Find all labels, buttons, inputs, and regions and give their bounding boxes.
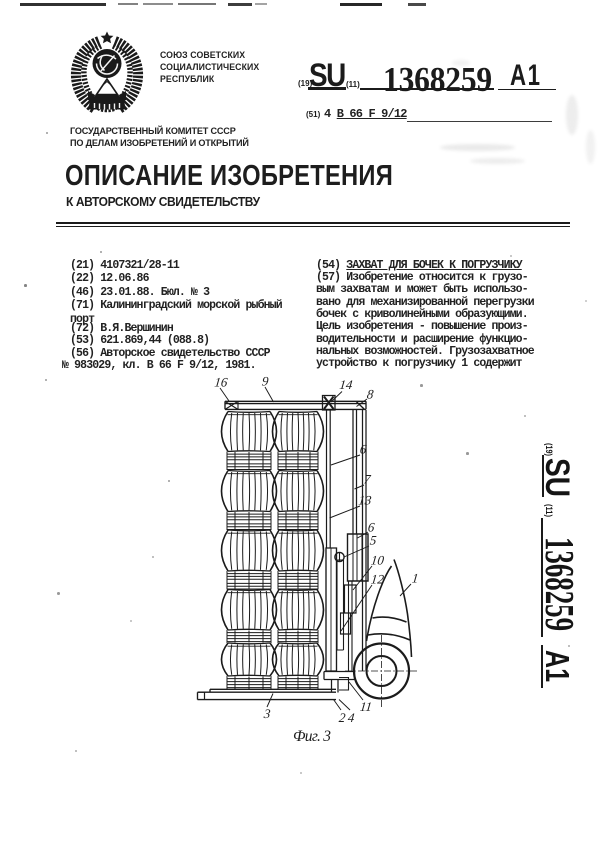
svg-text:2: 2 [338,710,347,725]
svg-text:Фиг. 3: Фиг. 3 [293,728,331,745]
svg-text:10: 10 [370,553,385,568]
svg-text:(19): (19) [543,443,554,456]
svg-text:(11): (11) [543,504,554,517]
svg-text:7: 7 [363,472,372,487]
svg-text:11: 11 [359,699,373,714]
svg-text:5: 5 [369,533,378,548]
svg-text:13: 13 [358,493,373,508]
svg-text:1368259: 1368259 [537,537,583,631]
svg-text:A1: A1 [539,650,576,682]
svg-text:16: 16 [214,375,229,390]
svg-text:12: 12 [370,572,385,587]
svg-text:9: 9 [261,374,270,389]
svg-text:1: 1 [411,571,419,586]
svg-text:14: 14 [339,377,354,392]
svg-text:8: 8 [366,387,375,402]
svg-text:4: 4 [347,710,356,725]
svg-text:3: 3 [262,706,272,721]
